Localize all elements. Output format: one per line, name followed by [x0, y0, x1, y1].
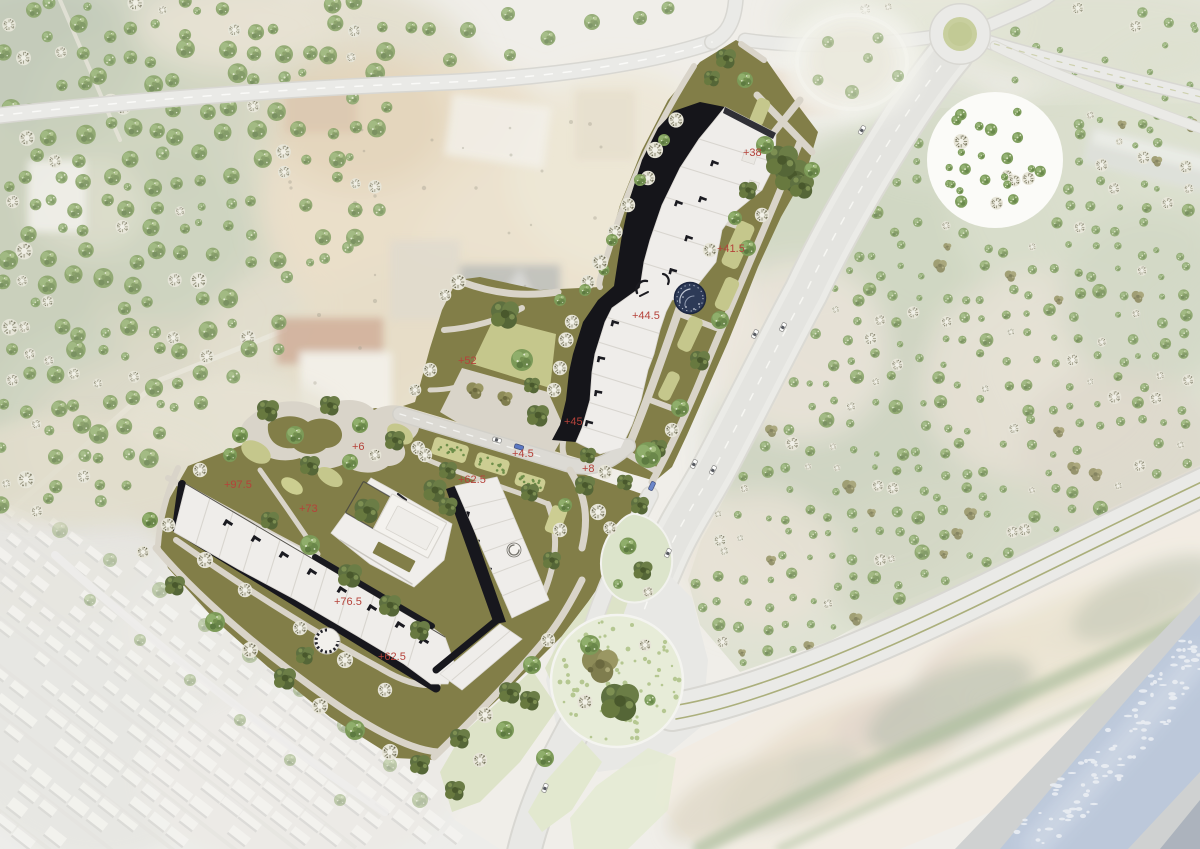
svg-text:+44.5: +44.5 [632, 310, 660, 322]
svg-text:+76.5: +76.5 [334, 596, 362, 608]
svg-text:+45: +45 [564, 416, 583, 428]
svg-text:+97.5: +97.5 [224, 479, 252, 491]
svg-text:+41.5: +41.5 [717, 243, 745, 255]
svg-text:+6: +6 [352, 441, 365, 453]
svg-text:+73: +73 [299, 503, 318, 515]
svg-text:+52: +52 [458, 355, 477, 367]
svg-text:+4.5: +4.5 [512, 448, 534, 460]
svg-text:+38: +38 [743, 147, 762, 159]
svg-text:+62.5: +62.5 [458, 474, 486, 486]
svg-text:+8: +8 [582, 463, 595, 475]
svg-text:+62.5: +62.5 [378, 651, 406, 663]
